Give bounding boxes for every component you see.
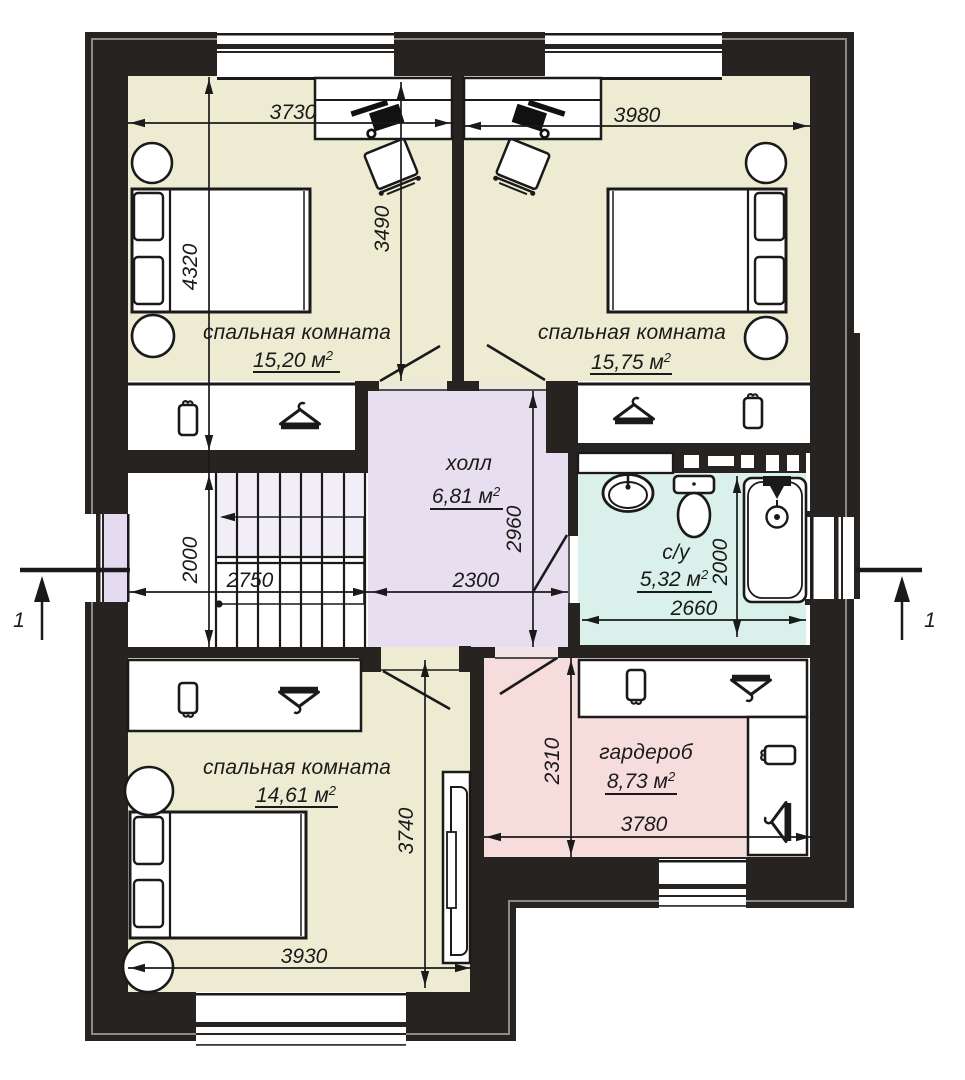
svg-text:1: 1	[13, 609, 25, 632]
svg-text:3490: 3490	[371, 205, 394, 252]
svg-text:5,32 м2: 5,32 м2	[640, 567, 709, 591]
svg-text:2300: 2300	[452, 569, 500, 592]
svg-text:14,61 м2: 14,61 м2	[256, 783, 337, 807]
svg-text:спальная комната: спальная комната	[203, 756, 391, 779]
svg-text:15,20 м2: 15,20 м2	[253, 348, 334, 372]
svg-text:спальная комната: спальная комната	[538, 321, 726, 344]
svg-text:2310: 2310	[541, 737, 564, 785]
svg-text:2960: 2960	[503, 505, 526, 553]
svg-text:2000: 2000	[179, 536, 202, 584]
svg-text:спальная комната: спальная комната	[203, 321, 391, 344]
svg-text:3980: 3980	[614, 104, 661, 127]
svg-text:4320: 4320	[179, 243, 202, 290]
svg-text:8,73 м2: 8,73 м2	[607, 769, 676, 793]
svg-text:15,75 м2: 15,75 м2	[591, 350, 672, 374]
svg-text:2000: 2000	[709, 538, 732, 586]
svg-text:гардероб: гардероб	[599, 741, 694, 764]
svg-text:с/у: с/у	[662, 541, 691, 564]
svg-text:3740: 3740	[395, 807, 418, 854]
svg-text:3730: 3730	[270, 101, 317, 124]
svg-text:2660: 2660	[670, 597, 718, 620]
svg-text:холл: холл	[445, 452, 492, 475]
svg-text:6,81 м2: 6,81 м2	[432, 484, 501, 508]
svg-text:1: 1	[924, 609, 936, 632]
svg-text:3930: 3930	[281, 945, 328, 968]
svg-text:2750: 2750	[226, 569, 274, 592]
svg-text:3780: 3780	[621, 813, 668, 836]
